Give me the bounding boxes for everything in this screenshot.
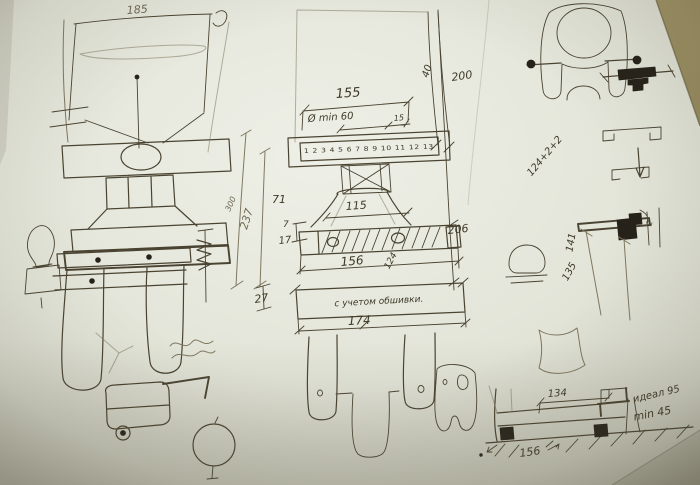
vignette-overlay bbox=[0, 0, 700, 485]
photo-of-pencil-sketch: 185 155 Ø min 60 40 200 15 1 2 3 4 5 6 7… bbox=[0, 0, 700, 485]
